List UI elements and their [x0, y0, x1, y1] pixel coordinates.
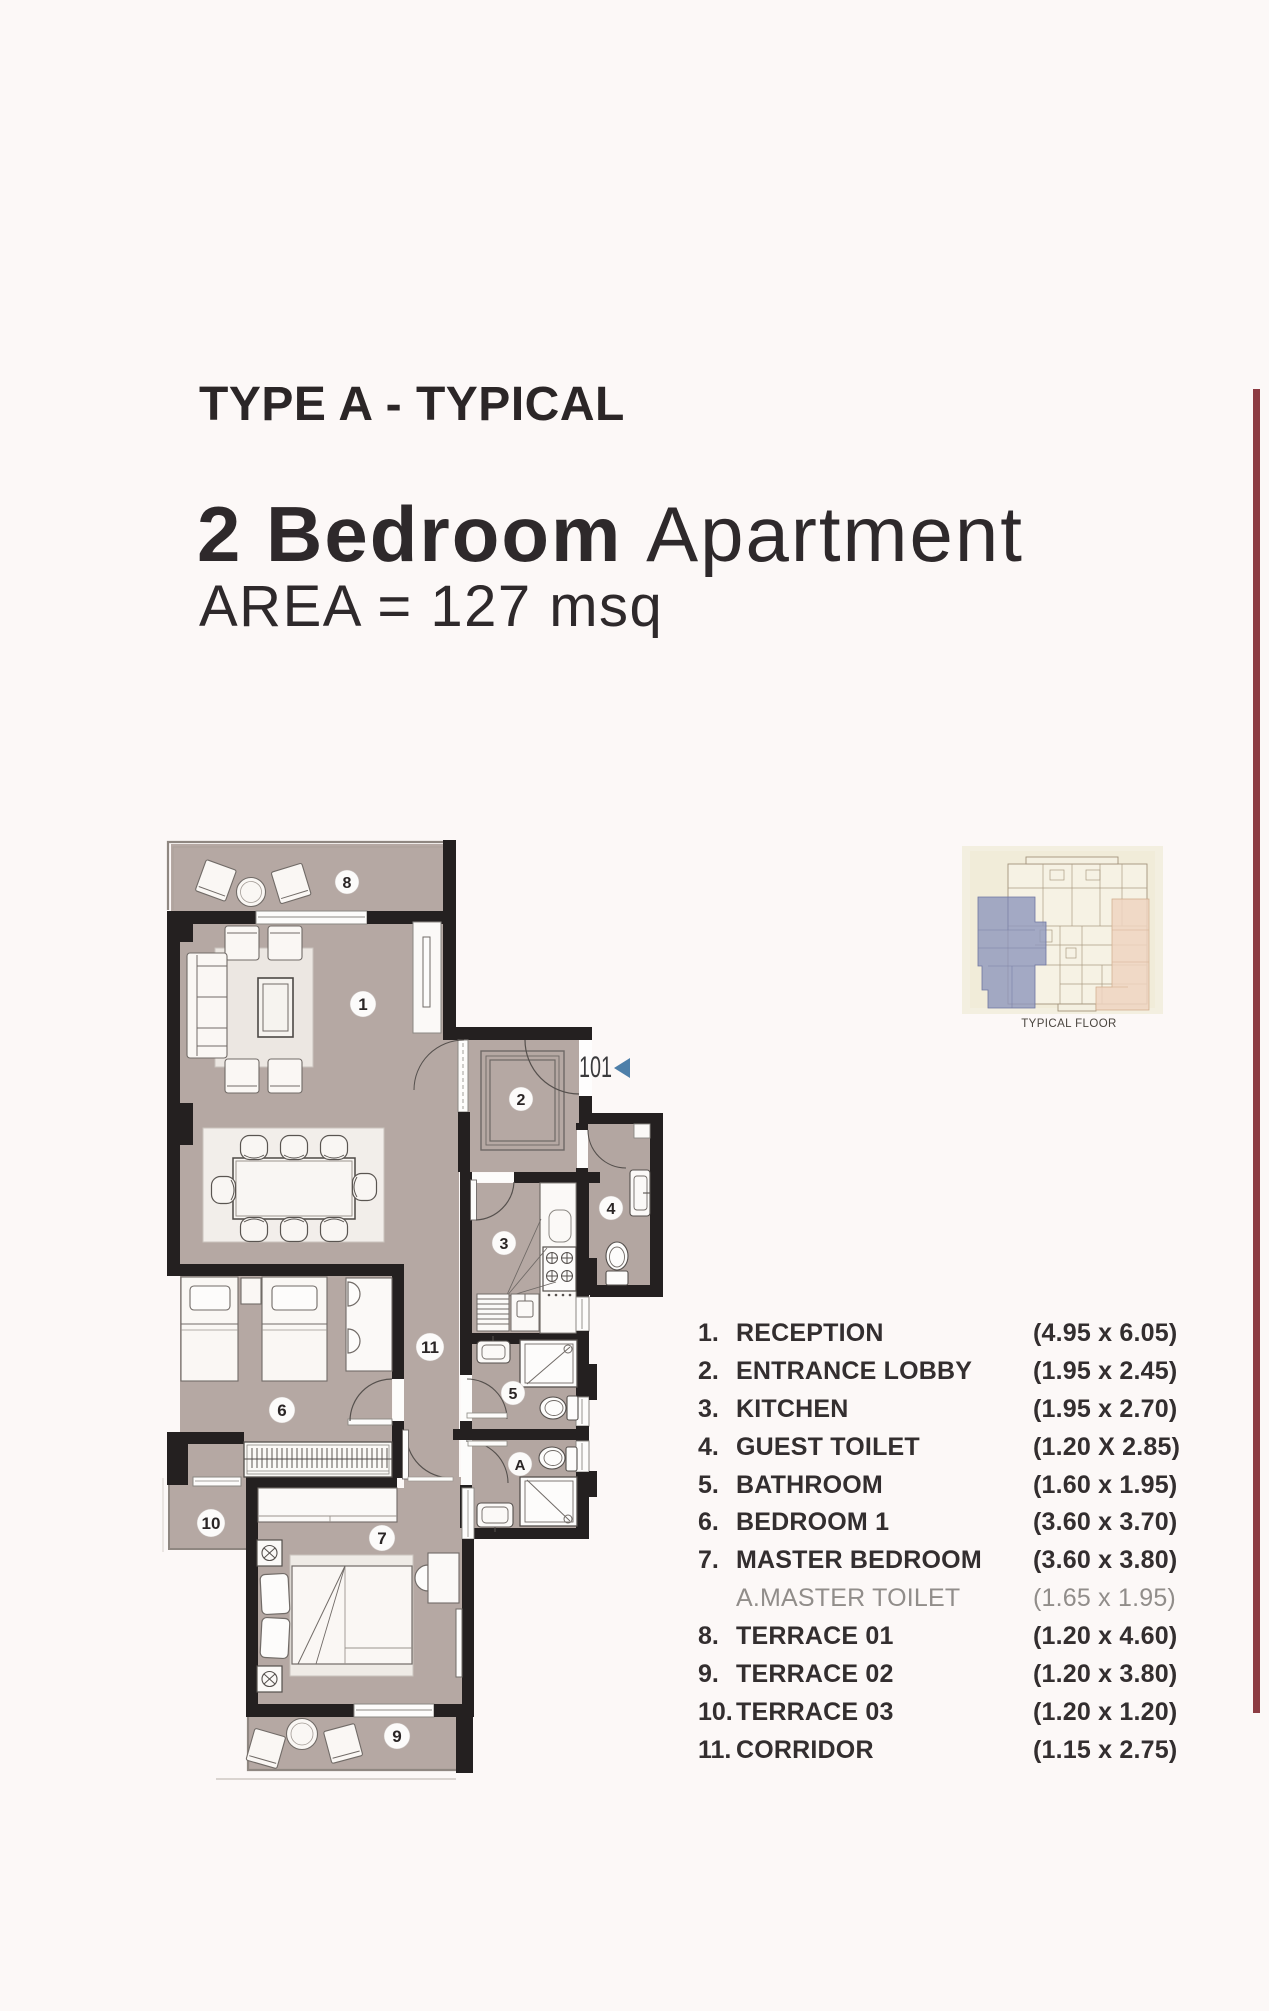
svg-text:5: 5: [509, 1386, 518, 1403]
svg-text:A: A: [515, 1457, 526, 1474]
svg-text:4: 4: [607, 1201, 616, 1218]
svg-text:9: 9: [392, 1727, 401, 1746]
svg-text:8: 8: [343, 875, 352, 892]
svg-text:1: 1: [358, 995, 367, 1014]
svg-text:3: 3: [500, 1236, 509, 1253]
svg-text:2: 2: [517, 1092, 526, 1109]
svg-text:7: 7: [377, 1529, 386, 1548]
svg-text:6: 6: [277, 1401, 286, 1420]
svg-text:10: 10: [202, 1514, 221, 1533]
svg-text:101: 101: [579, 1051, 612, 1084]
svg-text:TYPICAL FLOOR: TYPICAL FLOOR: [1021, 1018, 1117, 1030]
svg-text:11: 11: [421, 1338, 439, 1357]
